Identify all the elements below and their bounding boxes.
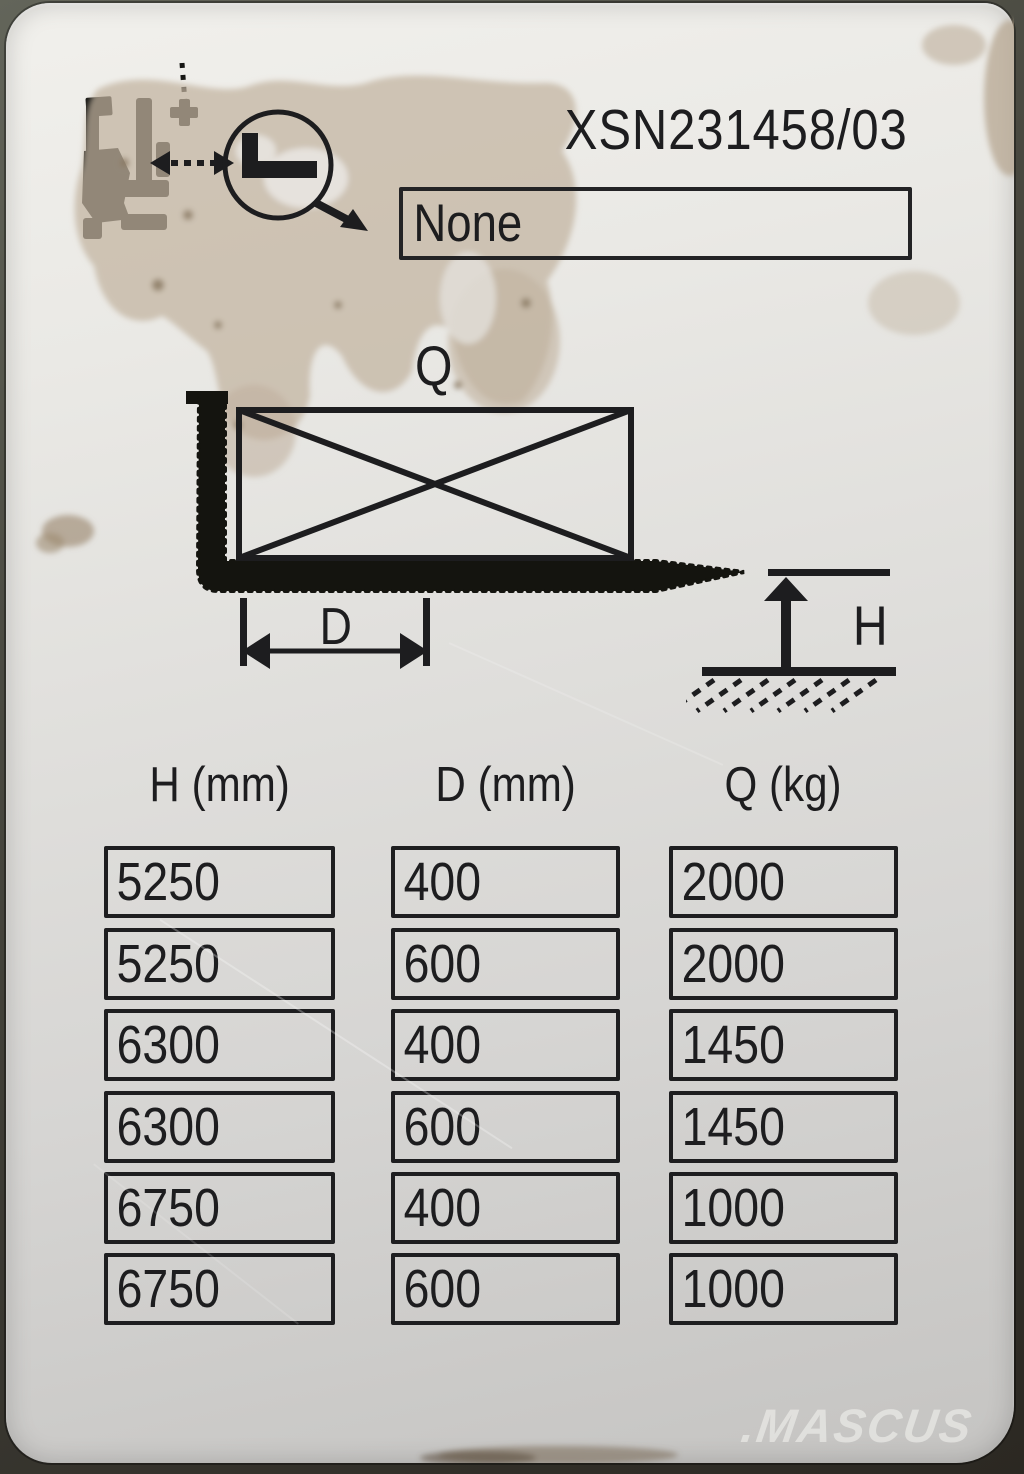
mascus-watermark: .MASCUS [738,1398,1006,1453]
cell-q-row5: 1000 [669,1253,898,1325]
cell-q-row0: 2000 [669,846,898,918]
cell-q-row3: 1450 [669,1091,898,1163]
glare-scratch [449,642,724,766]
fork-load-diagram [156,383,796,683]
column-header-q: Q (kg) [669,759,898,811]
capacity-plate: XSN231458/03 None [6,3,1014,1463]
load-label: Q [394,333,474,398]
cell-q-row1: 2000 [669,928,898,1000]
cell-h-row2: 6300 [104,1009,335,1081]
cell-h-row0: 5250 [104,846,335,918]
photo-of-capacity-plate: { "plate": { "serial_number": "XSN231458… [0,0,1024,1474]
cell-h-row1: 5250 [104,928,335,1000]
cell-q-row4: 1000 [669,1172,898,1244]
attachment-value-box: None [399,187,912,260]
column-header-h: H (mm) [104,759,335,811]
cell-h-row4: 6750 [104,1172,335,1244]
lift-height-label: H [834,593,906,658]
cell-d-row2: 400 [391,1009,620,1081]
column-header-d: D (mm) [391,759,620,811]
cell-q-row2: 1450 [669,1009,898,1081]
cell-d-row0: 400 [391,846,620,918]
cell-d-row5: 600 [391,1253,620,1325]
cell-h-row3: 6300 [104,1091,335,1163]
cell-d-row1: 600 [391,928,620,1000]
attachment-value: None [403,193,522,254]
fork-magnifier-icon [66,53,396,273]
cell-d-row3: 600 [391,1091,620,1163]
forklift-pictogram-icon [66,53,396,273]
serial-number: XSN231458/03 [486,97,908,163]
load-center-label: D [296,597,376,657]
cell-d-row4: 400 [391,1172,620,1244]
cell-h-row5: 6750 [104,1253,335,1325]
